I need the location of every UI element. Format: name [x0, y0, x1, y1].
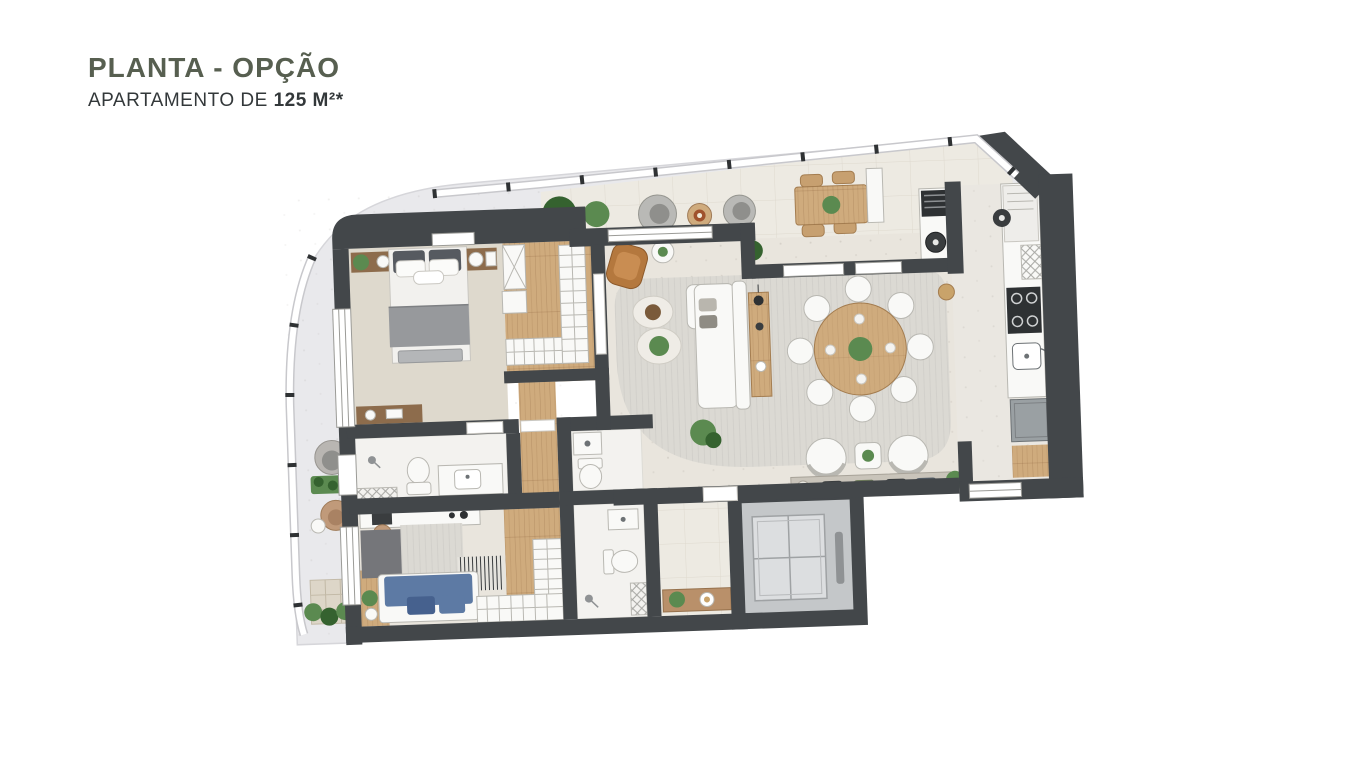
cooktop — [1006, 287, 1042, 334]
washer — [1010, 398, 1051, 441]
console-table — [748, 292, 772, 397]
hall-corridor-floor — [518, 382, 559, 509]
terrace-console — [866, 168, 884, 223]
floor-lamp — [938, 284, 955, 301]
nightstand — [467, 248, 498, 271]
bedroom-shelf — [351, 251, 394, 272]
bedroom-dresser — [356, 404, 423, 424]
floor-plan-page: PLANTA - OPÇÃO APARTAMENTO DE 125 M²* — [0, 0, 1366, 768]
terrace-side-table — [687, 203, 712, 228]
service-wood-crate — [1012, 444, 1051, 477]
bed — [387, 247, 471, 364]
elevator — [727, 489, 868, 630]
wardrobe-shaft — [501, 245, 527, 314]
entry-console — [663, 588, 732, 612]
floor-plan-image — [0, 0, 1366, 768]
den-sofa-bed — [378, 571, 480, 622]
